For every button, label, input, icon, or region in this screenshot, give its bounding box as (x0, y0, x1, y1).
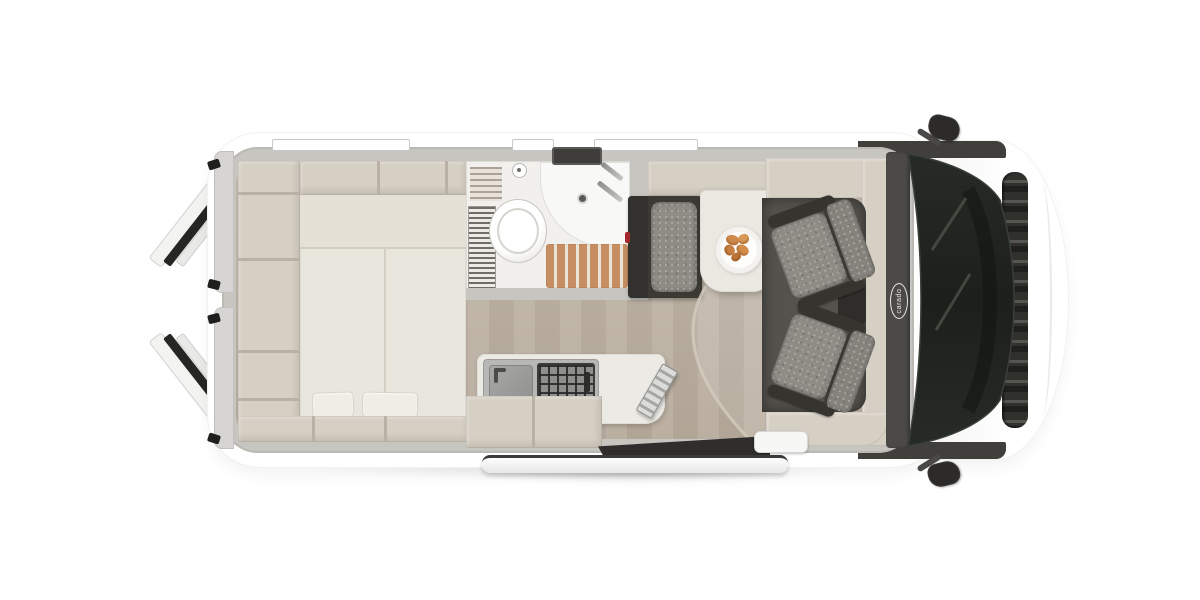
rear-door-sill-top (214, 151, 234, 293)
shelf-divider (238, 350, 300, 353)
roof-window-bathroom (512, 139, 554, 151)
rear-door-sill-bottom (214, 307, 234, 449)
cabinet-divider (377, 161, 380, 195)
storage-divider (312, 416, 315, 442)
rear-storage-shelves (238, 161, 300, 439)
toilet (489, 199, 547, 263)
shelf-divider (238, 258, 300, 261)
cabinet-divider (445, 161, 448, 195)
bathroom-door-pivot (512, 163, 527, 178)
shower-faucet (600, 162, 624, 182)
toilet-seat (497, 208, 539, 254)
roof-window-dinette (594, 139, 698, 151)
shower-head (597, 180, 624, 202)
overhead-cabinet-bedroom (300, 161, 468, 195)
bumper-contour-line (1032, 184, 1052, 416)
engine-grille (1002, 172, 1028, 428)
seatbelt-buckle (625, 232, 630, 243)
pillow (362, 392, 418, 419)
shower-drain (579, 195, 586, 202)
cabinet-divider (532, 396, 535, 448)
roof-vent (552, 147, 602, 165)
carado-logo: carado (890, 283, 908, 319)
kitchen-faucet-spout (494, 368, 506, 372)
pillow (312, 391, 355, 418)
storage-divider (384, 416, 387, 442)
shelf-divider (238, 192, 300, 195)
floorplan-canvas: carado (0, 0, 1200, 600)
bathroom-shelf (470, 167, 502, 201)
entry-step (754, 431, 808, 453)
plate (715, 226, 763, 274)
roof-window-bedroom (272, 139, 410, 151)
double-bed (300, 195, 466, 418)
carado-logo-text: carado (896, 289, 903, 314)
kitchen-base-cabinet (466, 396, 602, 448)
bottom-wall-storage (238, 416, 470, 442)
shelf-divider (238, 398, 300, 401)
sliding-door-open (482, 455, 788, 473)
hob-control (584, 372, 590, 392)
bed-duvet (300, 195, 466, 249)
